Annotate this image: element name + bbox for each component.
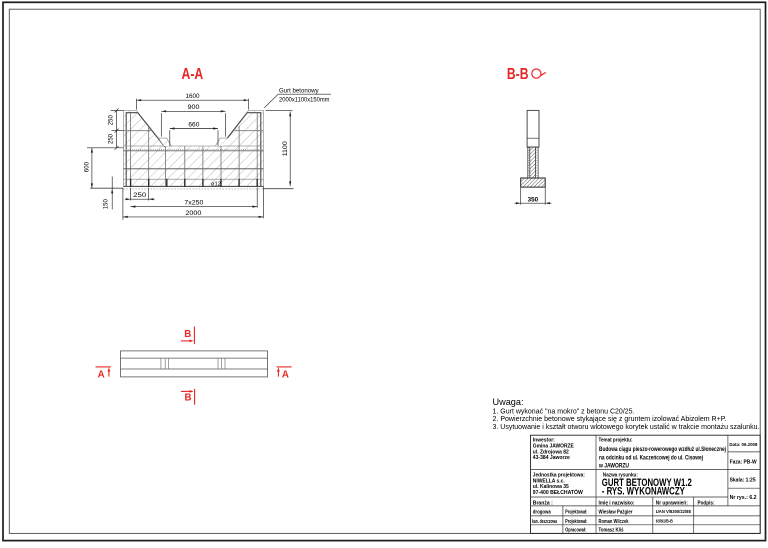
- svg-text:43-384 Jaworze: 43-384 Jaworze: [533, 455, 570, 461]
- svg-text:Podpis:: Podpis:: [698, 500, 715, 506]
- svg-text:Branża :: Branża :: [533, 501, 553, 507]
- svg-text:Opracował:: Opracował:: [565, 528, 586, 534]
- svg-text:63/91/B-B: 63/91/B-B: [656, 519, 673, 525]
- svg-text:Gurt betonowy: Gurt betonowy: [279, 88, 319, 95]
- svg-text:660: 660: [188, 121, 199, 128]
- svg-text:Tomasz Kliś: Tomasz Kliś: [599, 528, 624, 534]
- svg-text:Imię i nazwisko:: Imię i nazwisko:: [599, 501, 635, 507]
- svg-text:A: A: [98, 369, 106, 380]
- svg-text:w JAWORZU: w JAWORZU: [598, 462, 629, 469]
- svg-text:2. Powierzchnie betonowe styka: 2. Powierzchnie betonowe stykające się z…: [493, 416, 727, 423]
- svg-text:B: B: [185, 393, 192, 404]
- svg-text:3. Usytuowanie i kształt otwor: 3. Usytuowanie i kształt otworu wlotoweg…: [493, 424, 760, 431]
- svg-text:1100: 1100: [282, 141, 289, 156]
- svg-text:Inwestor:: Inwestor:: [533, 437, 555, 443]
- svg-text:Projektował:: Projektował:: [565, 519, 587, 525]
- svg-text:Skala: 1:25: Skala: 1:25: [730, 477, 756, 483]
- svg-text:Projektował:: Projektował:: [565, 510, 587, 516]
- svg-text:2000: 2000: [185, 210, 201, 217]
- svg-text:350: 350: [528, 197, 539, 204]
- svg-text:97-400 BEŁCHATÓW: 97-400 BEŁCHATÓW: [533, 488, 584, 496]
- svg-text:ø12: ø12: [211, 182, 221, 188]
- svg-text:kan. deszczowa: kan. deszczowa: [532, 519, 557, 525]
- svg-text:Faza: PB-W: Faza: PB-W: [730, 459, 758, 465]
- svg-text:Wiesław Pażgier: Wiesław Pażgier: [599, 510, 634, 516]
- svg-text:2000x1100x150mm: 2000x1100x150mm: [279, 97, 330, 104]
- svg-text:Roman Wilczek: Roman Wilczek: [599, 519, 630, 525]
- svg-text:7x250: 7x250: [184, 200, 203, 207]
- svg-text:drogowa: drogowa: [533, 510, 552, 516]
- svg-text:1600: 1600: [186, 93, 200, 100]
- svg-text:na odcinku od ul. Kaczeńcowej: na odcinku od ul. Kaczeńcowej do ul. Cis…: [599, 455, 703, 462]
- svg-text:Nr uprawnień:: Nr uprawnień:: [656, 500, 688, 506]
- svg-text:Nr rys.: 6.2: Nr rys.: 6.2: [730, 495, 757, 501]
- svg-text:- RYS. WYKONAWCZY: - RYS. WYKONAWCZY: [602, 486, 685, 498]
- svg-text:B-B: B-B: [507, 66, 529, 83]
- svg-text:Uwaga:: Uwaga:: [493, 397, 524, 407]
- svg-text:A: A: [282, 369, 290, 380]
- svg-text:150: 150: [102, 199, 109, 209]
- svg-text:1. Gurt wykonać "na mokro" z b: 1. Gurt wykonać "na mokro" z betonu C20/…: [493, 409, 635, 416]
- svg-text:Budowa ciągu pieszo-rowerowego: Budowa ciągu pieszo-rowerowego wzdłuż ul…: [599, 446, 726, 453]
- svg-text:Data: 06.2008: Data: 06.2008: [729, 442, 757, 448]
- svg-text:UAN V/8300/22/88: UAN V/8300/22/88: [656, 509, 692, 514]
- svg-text:900: 900: [188, 104, 200, 111]
- svg-text:A-A: A-A: [182, 66, 204, 83]
- svg-text:Temat projektu:: Temat projektu:: [599, 437, 633, 443]
- svg-text:B: B: [184, 329, 191, 340]
- svg-text:600: 600: [83, 162, 90, 172]
- svg-text:250: 250: [133, 192, 146, 199]
- svg-text:250: 250: [107, 115, 114, 125]
- svg-text:250: 250: [107, 134, 114, 144]
